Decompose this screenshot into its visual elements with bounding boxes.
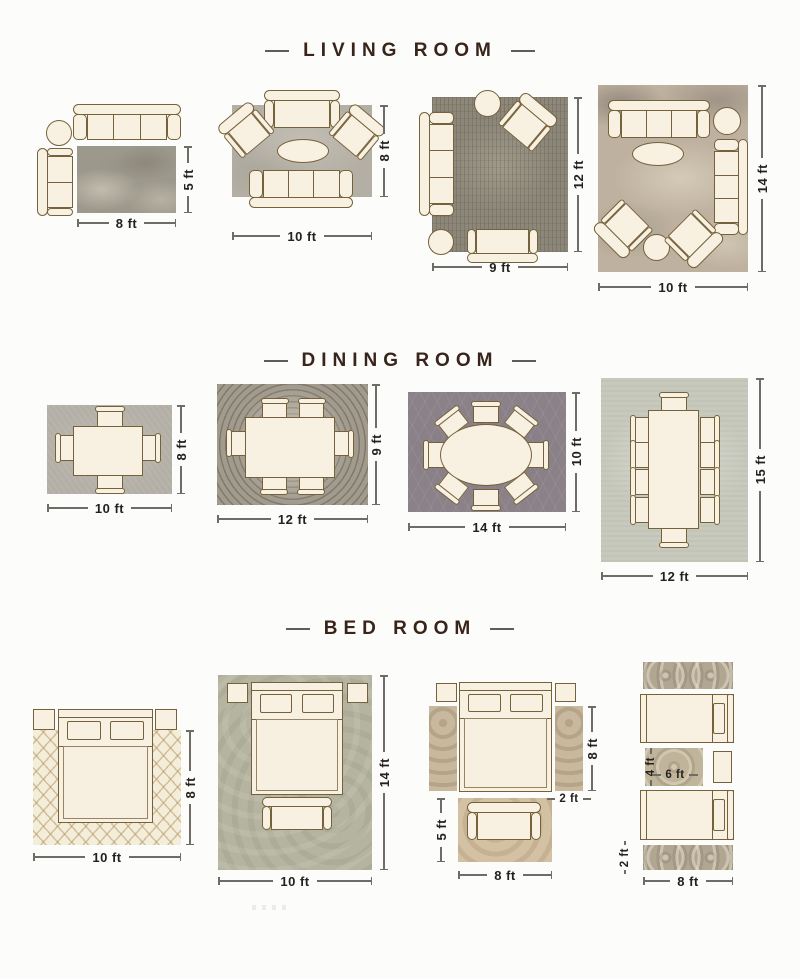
- headboard: [252, 683, 342, 691]
- pillow: [713, 799, 725, 832]
- dimension-height: 12 ft: [571, 97, 585, 252]
- headboard: [460, 683, 551, 691]
- rug: [77, 146, 176, 213]
- dimension-height: 8 ft: [183, 730, 197, 845]
- headboard: [727, 790, 733, 841]
- dining-chair: [630, 442, 650, 468]
- twin-bed: [640, 790, 734, 840]
- dimension-width: 10 ft: [218, 873, 372, 889]
- dining-chair: [700, 469, 720, 495]
- dining-chair: [661, 392, 687, 412]
- title-dash: [511, 50, 535, 53]
- pillow: [260, 694, 292, 713]
- bench: [467, 802, 541, 840]
- dimension-height: 14 ft: [377, 675, 391, 870]
- dimension-height: 10 ft: [569, 392, 583, 512]
- twin-bed: [640, 694, 734, 743]
- bed: [459, 682, 552, 792]
- dimension-between-rug-width: 6 ft: [652, 768, 698, 782]
- side-table-round: [46, 120, 72, 146]
- title-dash: [286, 628, 310, 631]
- dining-chair: [473, 401, 499, 423]
- dimension-width: 10 ft: [33, 849, 181, 865]
- dimension-runner-width: 8 ft: [643, 873, 733, 889]
- bench: [262, 797, 332, 830]
- nightstand: [33, 709, 55, 730]
- dimension-width: 12 ft: [217, 511, 368, 527]
- dimension-width: 10 ft: [232, 228, 372, 244]
- dining-chair: [299, 398, 324, 419]
- pillow: [302, 694, 334, 713]
- sofa: [608, 100, 710, 138]
- dimension-height: 9 ft: [369, 384, 383, 505]
- dining-chair: [661, 528, 687, 548]
- headboard: [59, 710, 152, 718]
- dining-chair: [333, 431, 354, 456]
- ottoman-round: [713, 107, 741, 135]
- pillow: [110, 721, 143, 740]
- pillow: [510, 694, 543, 712]
- dining-chair: [700, 497, 720, 523]
- dining-table: [648, 410, 699, 529]
- faint-watermark: [252, 905, 292, 910]
- dining-chair: [473, 489, 499, 511]
- blanket: [256, 719, 339, 791]
- nightstand: [436, 683, 457, 702]
- dimension-height: 14 ft: [755, 85, 769, 272]
- section-header-bed-room: BED ROOM: [0, 616, 800, 642]
- dimension-width: 12 ft: [601, 568, 748, 584]
- runner-rug: [643, 662, 733, 689]
- section-title: BED ROOM: [324, 618, 477, 640]
- dimension-width: 10 ft: [598, 279, 748, 295]
- dining-table: [245, 417, 335, 478]
- nightstand: [227, 683, 248, 703]
- section-header-living-room: LIVING ROOM: [0, 38, 800, 64]
- section-title: LIVING ROOM: [303, 40, 497, 62]
- dimension-width: 14 ft: [408, 519, 566, 535]
- loveseat: [264, 90, 340, 128]
- sofa: [73, 104, 181, 140]
- runner-rug: [555, 706, 583, 791]
- pillow: [713, 703, 725, 735]
- sofa: [249, 170, 353, 208]
- section-header-dining-room: DINING ROOM: [0, 348, 800, 374]
- dimension-foot-rug-width: 8 ft: [458, 867, 552, 883]
- dimension-width: 10 ft: [47, 500, 172, 516]
- bed: [58, 709, 153, 823]
- blanket: [464, 718, 548, 788]
- coffee-table-oval: [632, 142, 684, 166]
- runner-rug: [429, 706, 457, 791]
- dimension-foot-rug-height: 5 ft: [434, 798, 448, 862]
- title-dash: [512, 360, 536, 363]
- dimension-runner-width: 2 ft: [547, 792, 591, 806]
- dining-chair: [700, 417, 720, 443]
- section-title: DINING ROOM: [302, 350, 499, 372]
- dimension-width: 8 ft: [77, 215, 176, 231]
- dining-table: [73, 426, 143, 476]
- pillow: [468, 694, 501, 712]
- dimension-runner-height: 2 ft: [619, 841, 631, 874]
- dimension-bed-side: 8 ft: [585, 706, 599, 791]
- dining-table-oval: [440, 424, 532, 486]
- dimension-height: 8 ft: [174, 405, 188, 494]
- sofa: [714, 139, 748, 235]
- dining-chair: [630, 417, 650, 443]
- blanket: [63, 746, 149, 819]
- runner-rug: [643, 845, 733, 870]
- side-table-round: [474, 90, 501, 117]
- rug-size-guide-infographic: LIVING ROOM 5 ft 8 ft 8 ft 10 ft: [0, 0, 800, 978]
- dimension-width: 9 ft: [432, 259, 568, 275]
- coffee-table-oval: [277, 139, 329, 163]
- bench: [467, 229, 538, 263]
- nightstand: [555, 683, 576, 702]
- pillow: [67, 721, 100, 740]
- dining-chair: [700, 442, 720, 468]
- dining-chair: [97, 406, 123, 428]
- nightstand: [713, 751, 732, 783]
- dining-chair: [262, 398, 287, 419]
- nightstand: [347, 683, 368, 703]
- dining-chair: [630, 497, 650, 523]
- title-dash: [265, 50, 289, 53]
- dimension-height: 5 ft: [181, 146, 195, 213]
- headboard: [727, 694, 733, 744]
- title-dash: [264, 360, 288, 363]
- title-dash: [490, 628, 514, 631]
- dimension-height: 8 ft: [377, 105, 391, 197]
- dining-chair: [226, 431, 247, 456]
- dining-chair: [630, 469, 650, 495]
- dimension-height: 15 ft: [753, 378, 767, 562]
- bed: [251, 682, 343, 795]
- ottoman-round: [428, 229, 454, 255]
- sofa: [419, 112, 454, 216]
- nightstand: [155, 709, 177, 730]
- loveseat: [37, 148, 73, 216]
